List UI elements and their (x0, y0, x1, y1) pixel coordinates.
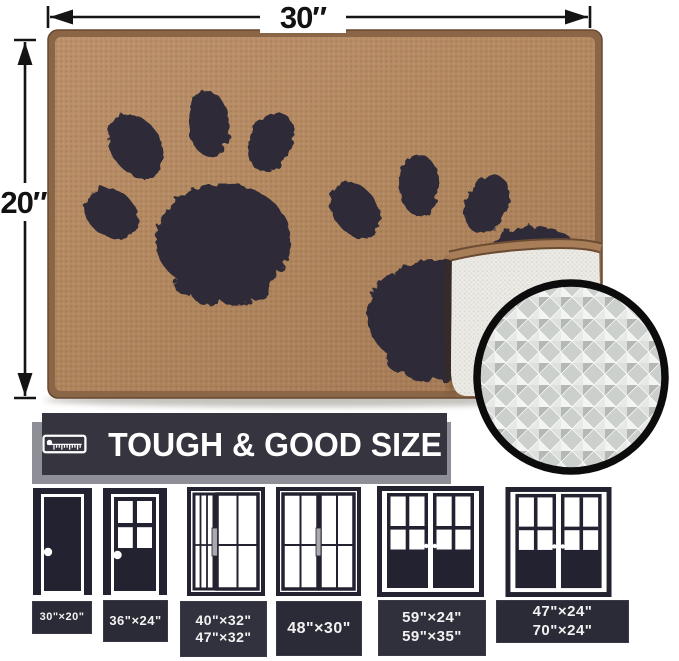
size-plate: 48"×30" (276, 601, 362, 656)
banner-label: TOUGH & GOOD SIZE (108, 428, 442, 461)
door-handle-icon (212, 528, 218, 556)
door-icon-half-glass (103, 488, 167, 595)
size-plate-line: 70"×24" (533, 622, 593, 641)
door-icon-double-french-wide (505, 487, 612, 597)
door-icon-sliding-narrow-wide (187, 487, 265, 596)
doorknob-icon (113, 551, 121, 559)
doorknob-icon (560, 544, 564, 548)
door-icon-single-solid (33, 488, 92, 595)
height-dimension-label: 20″ (0, 183, 47, 221)
size-plate-line: 30"×20" (40, 611, 85, 625)
doorknob-icon (424, 544, 428, 548)
tape-measure-icon (42, 431, 87, 457)
size-plate: 47"×24" 70"×24" (496, 600, 629, 643)
door-icon-double-french (377, 486, 484, 597)
size-plate-line: 59"×35" (402, 628, 462, 647)
size-plate-line: 40"×32" (195, 612, 251, 630)
doorknob-icon (433, 544, 437, 548)
size-plate: 40"×32" 47"×32" (180, 601, 267, 657)
product-size-infographic: 30″ 20″ TOUGH & GOOD SIZE (0, 0, 679, 661)
doorknob-icon (44, 548, 52, 556)
size-plate-line: 36"×24" (109, 613, 161, 629)
doorknob-icon (552, 544, 556, 548)
size-banner: TOUGH & GOOD SIZE (42, 413, 447, 475)
door-icon-sliding-equal (276, 487, 361, 596)
backing-zoom-inset (477, 283, 665, 471)
size-plate: 59"×24" 59"×35" (378, 600, 486, 656)
size-plate: 30"×20" (32, 601, 92, 634)
size-plate-line: 47"×24" (533, 603, 593, 622)
size-plate-line: 59"×24" (402, 609, 462, 628)
size-plate-line: 47"×32" (195, 629, 251, 647)
size-plate-line: 48"×30" (287, 619, 351, 639)
width-dimension-label: 30″ (260, 1, 346, 33)
size-plate: 36"×24" (103, 600, 168, 642)
door-handle-icon (316, 528, 321, 556)
